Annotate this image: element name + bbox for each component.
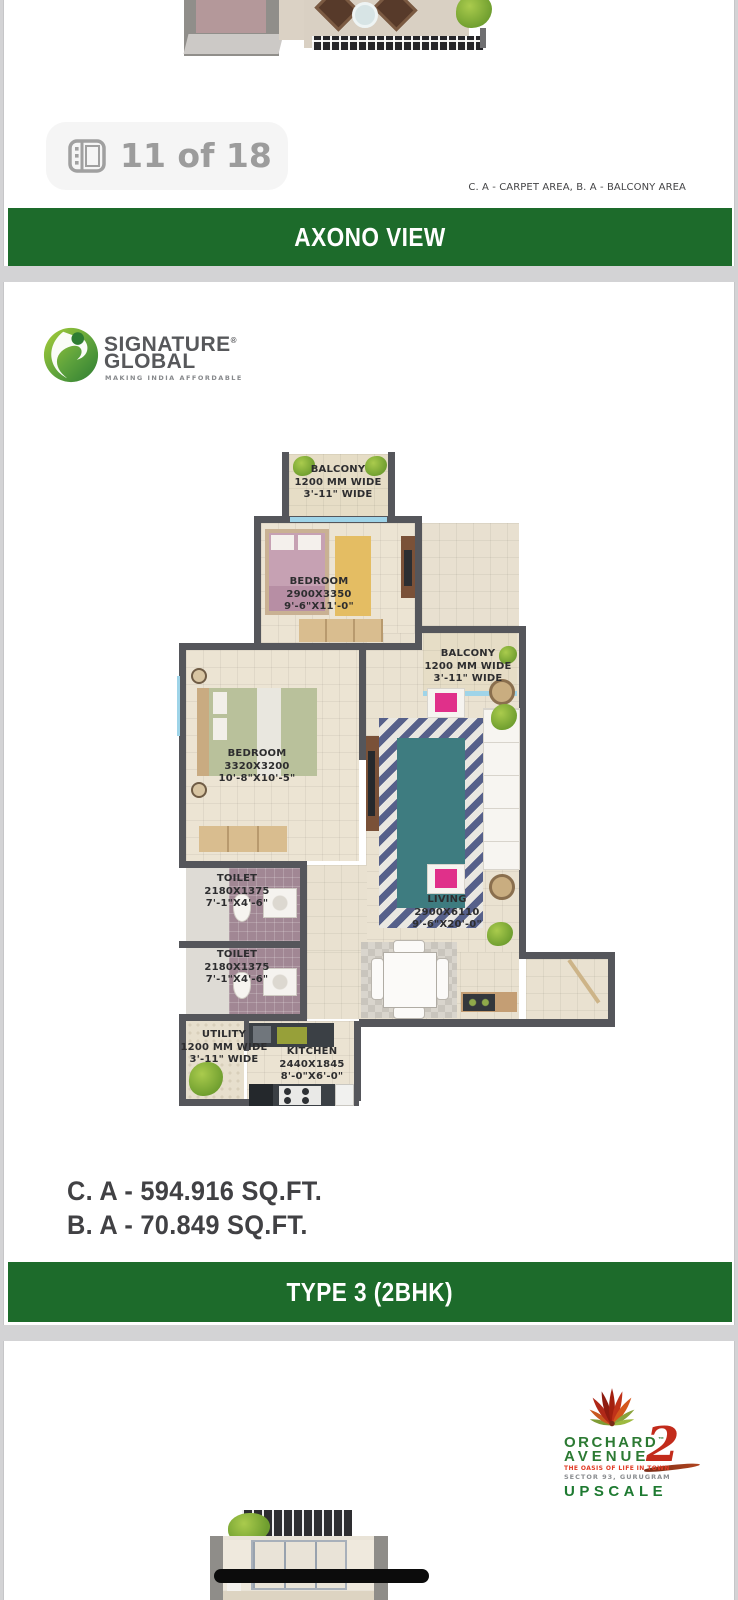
room-name: LIVING <box>412 894 482 907</box>
burner <box>284 1088 291 1095</box>
page-next: ORCHARD™ AVENUE 2 THE OASIS OF LIFE IN T… <box>3 1341 735 1600</box>
room-dim-mm: 1200 MM WIDE <box>425 661 512 674</box>
wall <box>388 452 395 518</box>
render-plant <box>456 0 492 28</box>
dining-chair <box>436 958 449 1000</box>
page-count-badge: 11 of 18 <box>46 122 288 190</box>
window-sill <box>177 676 180 736</box>
accent-chair-cushion <box>435 869 457 888</box>
wall <box>179 941 307 948</box>
wall <box>179 643 186 868</box>
room-label-toilet-1: TOILET 2180X1375 7'-1"X4'-6" <box>204 873 269 911</box>
orchard-avenue-logo: ORCHARD™ AVENUE 2 THE OASIS OF LIFE IN T… <box>544 1377 719 1507</box>
nightstand <box>191 782 207 798</box>
burner <box>302 1097 309 1104</box>
room-name: BEDROOM <box>284 576 354 589</box>
sofa <box>483 708 520 870</box>
window-sill <box>290 517 387 522</box>
render-round-table <box>352 2 378 28</box>
render-base-slab <box>184 34 284 54</box>
pillow <box>271 535 294 550</box>
nightstand <box>191 668 207 684</box>
wall <box>179 643 422 650</box>
room-name: BALCONY <box>295 464 382 477</box>
brand-name-line2: GLOBAL <box>104 351 196 372</box>
pages-icon <box>68 139 106 173</box>
burner <box>284 1097 291 1104</box>
project-upscale-label: UPSCALE <box>564 1483 667 1500</box>
room-dim-mm: 2180X1375 <box>204 962 269 975</box>
redaction-bar <box>214 1569 429 1583</box>
type-banner-label: TYPE 3 (2BHK) <box>287 1277 454 1308</box>
axono-3d-render-fragment <box>174 0 494 58</box>
burner <box>302 1088 309 1095</box>
room-label-utility: UTILITY 1200 MM WIDE 3'-11" WIDE <box>181 1029 268 1067</box>
axono-view-banner-label: AXONO VIEW <box>294 222 445 253</box>
wall <box>359 650 366 760</box>
render-wall-stub <box>480 28 486 48</box>
room-label-bedroom-1: BEDROOM 2900X3350 9'-6"X11'-0" <box>284 576 354 614</box>
room-label-kitchen: KITCHEN 2440X1845 8'-0"X6'-0" <box>279 1046 344 1084</box>
accent-chair-cushion <box>435 693 457 712</box>
document-viewer: { "viewer": { "page_badge": "11 of 18" }… <box>0 0 738 1600</box>
leaves-icon <box>574 1383 650 1427</box>
room-label-balcony-right: BALCONY 1200 MM WIDE 3'-11" WIDE <box>425 648 512 686</box>
project-name-line2: AVENUE <box>564 1449 649 1464</box>
room-name: BEDROOM <box>219 748 296 761</box>
tv-panel <box>368 751 375 816</box>
room-name: UTILITY <box>181 1029 268 1042</box>
room-dim-ft: 8'-0"X6'-0" <box>279 1071 344 1084</box>
axono-view-banner: AXONO VIEW <box>8 208 732 266</box>
render-wall-left <box>210 1536 223 1600</box>
page-count-label: 11 of 18 <box>120 122 272 190</box>
project-tagline-1: THE OASIS OF LIFE IN TOWN <box>564 1465 670 1472</box>
fridge <box>335 1084 354 1106</box>
wall <box>282 452 289 518</box>
room-dim-ft: 7'-1"X4'-6" <box>204 898 269 911</box>
kitchen-cabinet <box>249 1084 273 1106</box>
tv-panel <box>404 550 412 586</box>
wall <box>179 861 307 868</box>
floor-passage <box>422 523 519 630</box>
pillow <box>213 718 227 740</box>
room-dim-ft: 7'-1"X4'-6" <box>204 974 269 987</box>
render-railing <box>312 36 484 50</box>
wall <box>608 957 615 1019</box>
type-banner: TYPE 3 (2BHK) <box>8 1262 732 1322</box>
wall <box>254 516 261 650</box>
brand-tagline: MAKING INDIA AFFORDABLE <box>105 374 243 382</box>
console-tray <box>463 994 495 1011</box>
room-label-living: LIVING 2900X6110 9'-6"X20'-0" <box>412 894 482 932</box>
room-dim-mm: 2440X1845 <box>279 1059 344 1072</box>
room-name: TOILET <box>204 949 269 962</box>
room-name: BALCONY <box>425 648 512 661</box>
room-dim-mm: 1200 MM WIDE <box>295 477 382 490</box>
wall <box>519 952 615 959</box>
room-dim-ft: 3'-11" WIDE <box>295 489 382 502</box>
room-name: KITCHEN <box>279 1046 344 1059</box>
room-dim-ft: 9'-6"X11'-0" <box>284 601 354 614</box>
room-dim-mm: 1200 MM WIDE <box>181 1042 268 1055</box>
room-dim-mm: 2900X3350 <box>284 589 354 602</box>
balcony-area-text: B. A - 70.849 SQ.FT. <box>67 1209 308 1241</box>
room-dim-mm: 2180X1375 <box>204 886 269 899</box>
registered-mark: ® <box>231 336 237 345</box>
wall <box>179 1014 307 1021</box>
room-dim-ft: 3'-11" WIDE <box>425 673 512 686</box>
room-label-toilet-2: TOILET 2180X1375 7'-1"X4'-6" <box>204 949 269 987</box>
side-table <box>489 874 515 900</box>
room-dim-mm: 3320X3200 <box>219 761 296 774</box>
page-axono-view: 11 of 18 C. A - CARPET AREA, B. A - BALC… <box>3 0 735 266</box>
signature-global-logo-icon <box>42 326 100 384</box>
project-tagline-2: SECTOR 93, GURUGRAM <box>564 1473 671 1481</box>
pillow <box>213 692 227 714</box>
wall <box>416 626 524 633</box>
room-dim-ft: 9'-6"X20'-0" <box>412 919 482 932</box>
wall <box>359 1019 615 1027</box>
project-number: 2 <box>646 1421 679 1469</box>
pillow <box>298 535 321 550</box>
dresser <box>199 826 287 852</box>
area-legend-caption: C. A - CARPET AREA, B. A - BALCONY AREA <box>468 182 686 193</box>
next-3d-render-fragment <box>209 1507 389 1600</box>
signature-global-logo: SIGNATURE® GLOBAL MAKING INDIA AFFORDABL… <box>42 326 282 396</box>
wall <box>519 626 526 959</box>
room-dim-ft: 3'-11" WIDE <box>181 1054 268 1067</box>
room-name: TOILET <box>204 873 269 886</box>
render-room-floor <box>196 0 266 33</box>
carpet-area-text: C. A - 594.916 SQ.FT. <box>67 1175 322 1207</box>
room-dim-mm: 2900X6110 <box>412 907 482 920</box>
wardrobe <box>299 619 383 642</box>
wall <box>300 861 307 1021</box>
page-floor-plan: SIGNATURE® GLOBAL MAKING INDIA AFFORDABL… <box>3 282 735 1325</box>
floor-plan: BALCONY 1200 MM WIDE 3'-11" WIDE BEDROOM… <box>169 436 639 1111</box>
wall <box>354 1021 361 1101</box>
headboard <box>197 688 209 776</box>
render-wall-right <box>374 1536 388 1600</box>
room-dim-ft: 10'-8"X10'-5" <box>219 773 296 786</box>
room-label-bedroom-2: BEDROOM 3320X3200 10'-8"X10'-5" <box>219 748 296 786</box>
kitchen-sink <box>277 1027 307 1044</box>
dining-table <box>383 952 437 1008</box>
floor-entrance <box>526 959 608 1019</box>
render-floor <box>223 1591 374 1600</box>
room-label-balcony-top: BALCONY 1200 MM WIDE 3'-11" WIDE <box>295 464 382 502</box>
